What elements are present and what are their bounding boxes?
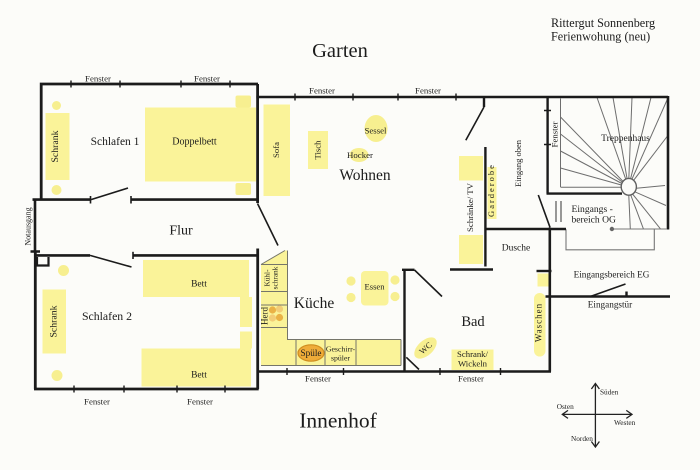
- svg-text:Herd: Herd: [260, 307, 270, 325]
- svg-text:Wohnen: Wohnen: [339, 167, 391, 184]
- svg-text:Eingangsbereich EG: Eingangsbereich EG: [574, 270, 650, 280]
- svg-text:Schrank: Schrank: [50, 130, 61, 162]
- svg-text:Eingangs -: Eingangs -: [572, 204, 613, 215]
- svg-text:Süden: Süden: [600, 387, 619, 396]
- svg-text:Geschirr-: Geschirr-: [326, 345, 356, 354]
- svg-text:Essen: Essen: [364, 282, 385, 292]
- svg-text:Bett: Bett: [191, 371, 207, 381]
- svg-text:Schlafen 1: Schlafen 1: [91, 136, 140, 148]
- svg-text:Dusche: Dusche: [502, 244, 531, 254]
- svg-text:Norden: Norden: [571, 434, 593, 443]
- svg-text:Bett: Bett: [191, 280, 207, 290]
- svg-text:Notausgang: Notausgang: [23, 207, 32, 245]
- svg-text:Garderobe: Garderobe: [486, 163, 496, 217]
- svg-text:Ferienwohung (neu): Ferienwohung (neu): [551, 29, 650, 43]
- svg-text:Eingang oben: Eingang oben: [513, 139, 523, 187]
- svg-text:Fenster: Fenster: [458, 374, 484, 384]
- svg-text:Flur: Flur: [169, 224, 193, 239]
- svg-text:Fenster: Fenster: [187, 397, 213, 407]
- svg-text:Treppenhaus: Treppenhaus: [601, 134, 650, 144]
- svg-text:bereich OG: bereich OG: [572, 215, 617, 226]
- svg-text:Fenster: Fenster: [194, 74, 220, 84]
- svg-text:Fenster: Fenster: [85, 74, 111, 84]
- svg-text:Hocker: Hocker: [347, 150, 373, 160]
- svg-text:Fenster: Fenster: [84, 397, 110, 407]
- svg-text:Schrank/: Schrank/: [457, 349, 488, 359]
- svg-text:Fenster: Fenster: [415, 86, 441, 96]
- svg-text:Schrank: Schrank: [48, 305, 59, 337]
- svg-text:Doppelbett: Doppelbett: [172, 137, 217, 148]
- svg-text:Waschen: Waschen: [533, 303, 543, 342]
- svg-text:Osten: Osten: [557, 402, 574, 411]
- svg-text:Eingangstür: Eingangstür: [588, 300, 632, 310]
- svg-text:Schlafen 2: Schlafen 2: [82, 309, 132, 323]
- svg-text:Fenster: Fenster: [305, 374, 331, 384]
- svg-text:Wickeln: Wickeln: [458, 359, 488, 369]
- svg-text:Sofa: Sofa: [271, 142, 281, 158]
- svg-text:spüler: spüler: [331, 354, 350, 363]
- svg-text:Westen: Westen: [614, 418, 636, 427]
- svg-text:Sessel: Sessel: [365, 126, 388, 136]
- svg-text:schrank: schrank: [271, 266, 280, 289]
- svg-text:Küche: Küche: [294, 295, 335, 312]
- svg-text:Spüle: Spüle: [301, 348, 322, 358]
- svg-text:Fenster: Fenster: [309, 86, 335, 96]
- svg-text:Rittergut Sonnenberg: Rittergut Sonnenberg: [551, 16, 655, 30]
- svg-text:Schränke/ TV: Schränke/ TV: [465, 182, 475, 232]
- svg-text:Tisch: Tisch: [313, 140, 323, 160]
- svg-text:Fenster: Fenster: [550, 121, 560, 147]
- svg-text:Garten: Garten: [312, 40, 368, 62]
- svg-text:Bad: Bad: [461, 314, 485, 330]
- svg-text:Innenhof: Innenhof: [299, 409, 377, 433]
